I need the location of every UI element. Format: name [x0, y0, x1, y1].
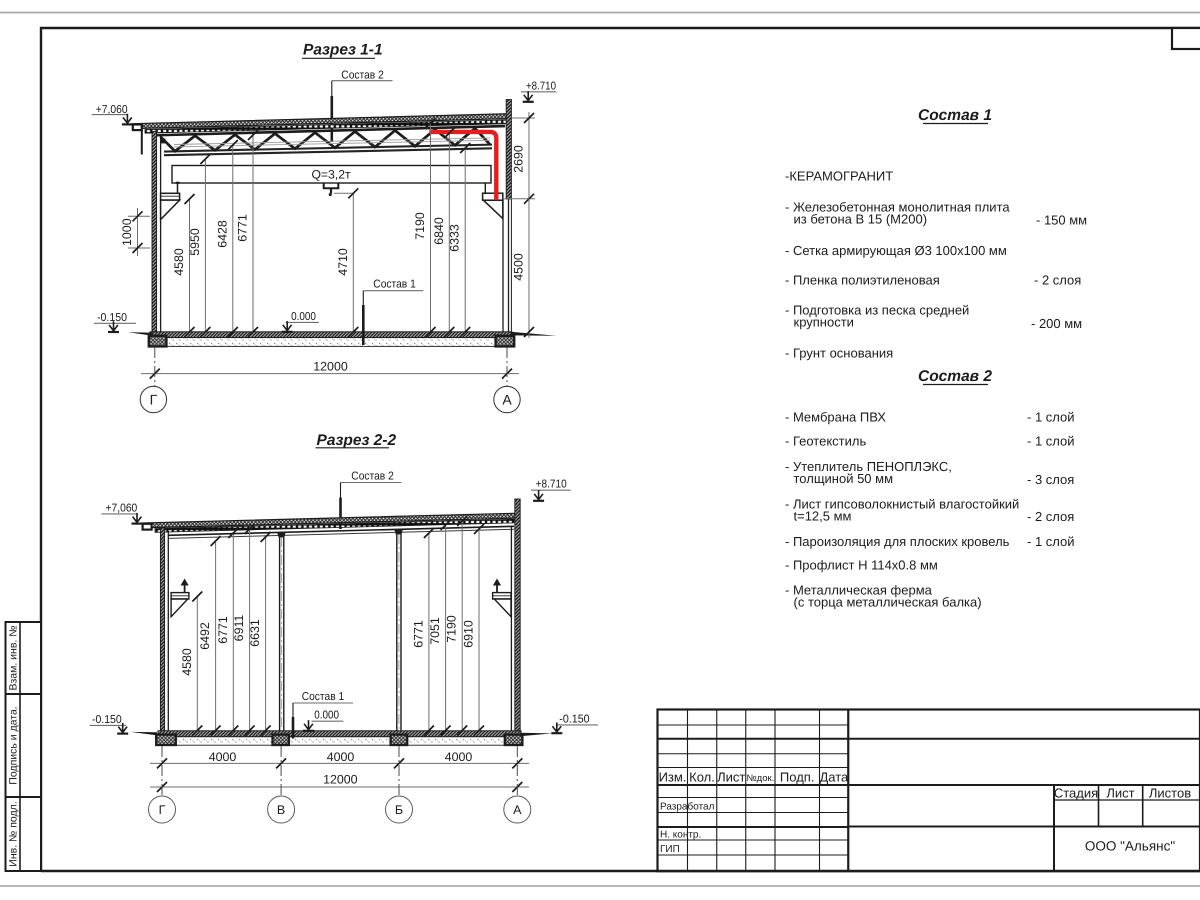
svg-text:-0.150: -0.150: [92, 714, 122, 726]
svg-text:Подп.: Подп.: [780, 770, 815, 785]
svg-text:0.000: 0.000: [314, 709, 339, 721]
svg-text:6771: 6771: [216, 616, 230, 644]
svg-text:Н. контр.: Н. контр.: [660, 830, 701, 841]
svg-text:Q=3,2т: Q=3,2т: [311, 167, 351, 181]
svg-text:6428: 6428: [215, 220, 229, 248]
svg-text:6771: 6771: [236, 214, 250, 242]
svg-text:А: А: [502, 392, 512, 408]
svg-text:Лист: Лист: [717, 770, 745, 785]
svg-text:- 3 слоя: - 3 слоя: [1027, 472, 1074, 487]
svg-text:1000: 1000: [120, 218, 134, 246]
svg-text:+7,060: +7,060: [106, 502, 138, 514]
svg-text:Состав 1: Состав 1: [373, 279, 416, 291]
svg-text:Состав 2: Состав 2: [341, 69, 384, 81]
svg-text:Состав 1: Состав 1: [302, 691, 345, 703]
svg-text:Стадия: Стадия: [1054, 786, 1098, 801]
svg-text:- Профлист Н 114х0.8 мм: - Профлист Н 114х0.8 мм: [785, 558, 938, 573]
svg-text:- Пароизоляция для плоских кро: - Пароизоляция для плоских кровель: [785, 534, 1010, 549]
svg-text:+7,060: +7,060: [96, 104, 128, 116]
svg-text:В: В: [277, 803, 285, 817]
svg-text:Взам. инв. №: Взам. инв. №: [8, 625, 20, 690]
svg-text:Инв. № подл.: Инв. № подл.: [8, 801, 20, 866]
svg-text:Разрез 2-2: Разрез 2-2: [317, 432, 397, 449]
svg-text:+8.710: +8.710: [536, 478, 567, 490]
svg-text:Листов: Листов: [1149, 786, 1191, 801]
svg-text:7190: 7190: [413, 212, 427, 240]
svg-text:№док.: №док.: [746, 773, 774, 784]
svg-text:6771: 6771: [411, 620, 425, 648]
svg-text:4500: 4500: [512, 253, 526, 281]
svg-text:6840: 6840: [432, 217, 446, 245]
svg-text:- Сетка армирующая Ø3 100х100: - Сетка армирующая Ø3 100х100 мм: [785, 243, 1007, 258]
svg-text:Состав 2: Состав 2: [351, 471, 394, 483]
svg-text:крупности: крупности: [794, 315, 854, 330]
svg-text:- 150 мм: - 150 мм: [1036, 213, 1087, 228]
svg-text:- 1 слой: - 1 слой: [1027, 410, 1075, 425]
svg-text:7190: 7190: [445, 615, 459, 643]
svg-text:+8.710: +8.710: [526, 81, 556, 93]
svg-text:Разработал: Разработал: [660, 802, 715, 813]
svg-text:- 2 слоя: - 2 слоя: [1027, 509, 1074, 524]
svg-text:Состав 1: Состав 1: [918, 107, 992, 124]
svg-text:- Грунт основания: - Грунт основания: [785, 346, 893, 361]
svg-text:- 1 слой: - 1 слой: [1027, 534, 1075, 549]
svg-text:4580: 4580: [172, 248, 186, 276]
svg-text:6910: 6910: [462, 620, 476, 648]
svg-text:- 2 слоя: - 2 слоя: [1034, 273, 1081, 288]
svg-text:4000: 4000: [209, 750, 237, 764]
svg-text:-0.150: -0.150: [559, 713, 589, 725]
svg-text:из бетона В 15 (М200): из бетона В 15 (М200): [794, 212, 928, 227]
svg-text:- Пленка полиэтиленовая: - Пленка полиэтиленовая: [785, 273, 940, 288]
svg-text:5950: 5950: [188, 228, 202, 256]
svg-text:толщиной 50 мм: толщиной 50 мм: [794, 471, 894, 486]
svg-text:(с торца металлическая балка): (с торца металлическая балка): [794, 595, 982, 610]
svg-text:Разрез 1-1: Разрез 1-1: [303, 42, 383, 59]
svg-text:ГИП: ГИП: [660, 844, 680, 855]
svg-text:Г: Г: [159, 803, 166, 817]
svg-text:Кол.: Кол.: [689, 770, 715, 785]
svg-text:4710: 4710: [336, 248, 350, 276]
svg-text:6911: 6911: [232, 615, 246, 642]
svg-text:2690: 2690: [512, 145, 526, 173]
svg-text:4000: 4000: [327, 750, 355, 764]
svg-text:t=12,5 мм: t=12,5 мм: [794, 509, 852, 524]
svg-text:12000: 12000: [323, 773, 358, 787]
svg-text:4580: 4580: [180, 648, 194, 676]
svg-text:0.000: 0.000: [291, 311, 316, 323]
svg-text:6333: 6333: [448, 224, 462, 252]
svg-text:- Мембрана ПВХ: - Мембрана ПВХ: [785, 410, 886, 425]
svg-text:-КЕРАМОГРАНИТ: -КЕРАМОГРАНИТ: [785, 169, 893, 184]
svg-text:Изм.: Изм.: [659, 770, 687, 785]
svg-text:Подпись и дата.: Подпись и дата.: [8, 706, 20, 784]
svg-text:4000: 4000: [445, 750, 473, 764]
svg-text:ООО "Альянс": ООО "Альянс": [1085, 839, 1175, 854]
svg-text:6492: 6492: [198, 622, 212, 650]
svg-text:6631: 6631: [248, 619, 262, 647]
svg-text:7051: 7051: [428, 617, 442, 645]
svg-text:Лист: Лист: [1106, 786, 1134, 801]
svg-text:Г: Г: [150, 392, 158, 408]
svg-text:-0.150: -0.150: [97, 312, 127, 324]
svg-text:Б: Б: [395, 803, 403, 817]
svg-text:Дата: Дата: [820, 770, 850, 785]
svg-text:Состав 2: Состав 2: [918, 368, 992, 385]
svg-text:- Геотекстиль: - Геотекстиль: [785, 434, 866, 449]
svg-text:12000: 12000: [313, 360, 348, 374]
svg-text:- 1 слой: - 1 слой: [1027, 434, 1075, 449]
svg-text:А: А: [513, 803, 522, 817]
svg-text:- 200 мм: - 200 мм: [1031, 316, 1082, 331]
